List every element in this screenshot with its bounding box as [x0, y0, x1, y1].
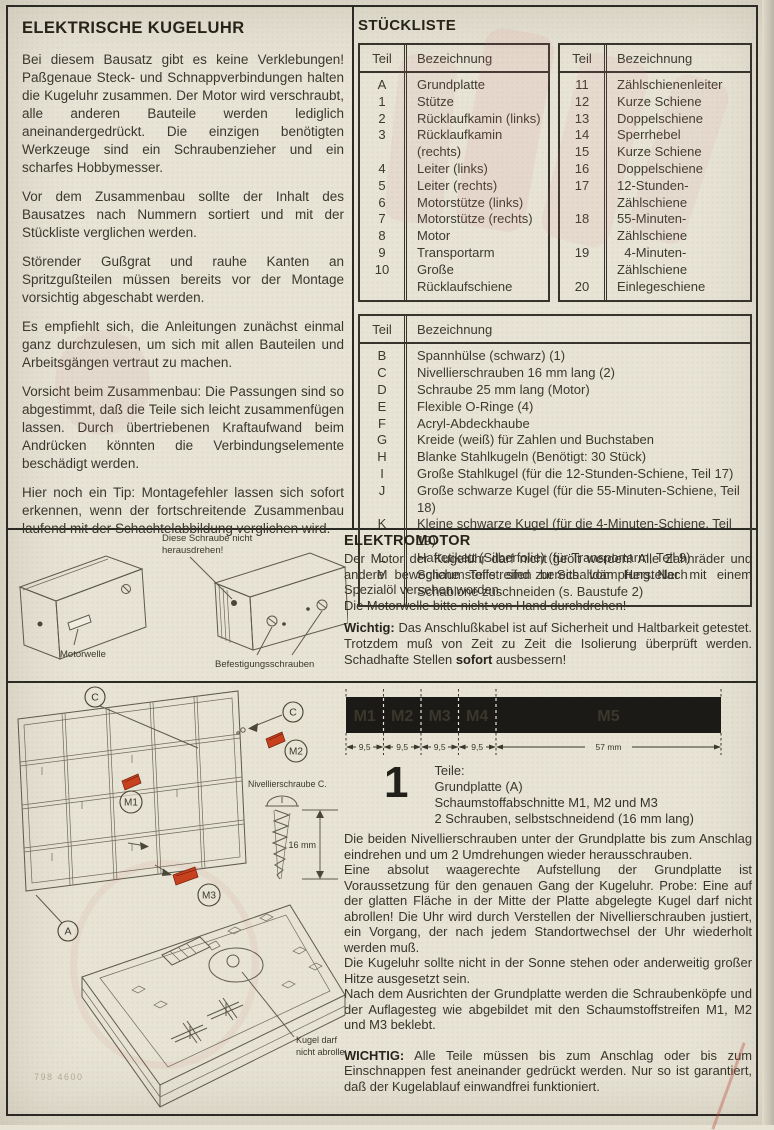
intro-paragraph: Störender Gußgrat und rauhe Kanten an Sp… [22, 253, 344, 307]
part-id: D [360, 382, 404, 399]
table-header: Teil Bezeichnung [360, 45, 548, 73]
callout-m3: M3 [198, 884, 220, 906]
test-ball-icon [227, 955, 239, 967]
table-row: B Spannhülse (schwarz) (1) [360, 348, 750, 365]
table-rows: A Grundplatte 1 Stütze 2 Rücklaufkamin (… [360, 73, 548, 300]
table-row: F Acryl-Abdeckhaube [360, 416, 750, 433]
segment-label-m4: M4 [466, 708, 488, 725]
part-id: 16 [560, 161, 604, 178]
scan-edge [762, 0, 774, 1125]
important-label: Wichtig: [344, 620, 395, 635]
part-name: 4-Minuten-Zählschiene [604, 245, 750, 279]
table-row: D Schraube 25 mm lang (Motor) [360, 382, 750, 399]
header-bezeichnung: Bezeichnung [404, 322, 750, 337]
callout-m1: M1 [120, 791, 142, 813]
table-column-separator [604, 45, 607, 300]
table-row: J Große schwarze Kugel (für die 55-Minut… [360, 483, 750, 517]
part-name: 12-Stunden-Zählschiene [604, 178, 750, 212]
page-frame: ELEKTRISCHE KUGELUHR Bei diesem Bausatz … [6, 5, 758, 1116]
part-name: Große Rücklaufschiene [404, 262, 548, 296]
svg-text:A: A [64, 926, 71, 938]
table-row: H Blanke Stahlkugeln (Benötigt: 30 Stück… [360, 449, 750, 466]
table-column-separator [404, 45, 407, 300]
screw-warning-label-line1: Diese Schraube nicht [162, 533, 253, 544]
part-name: Kurze Schiene [604, 144, 750, 161]
table-rows: 11 Zählschienenleiter 12 Kurze Schiene 1… [560, 73, 750, 300]
part-id: 4 [360, 161, 404, 178]
vertical-divider [352, 7, 354, 528]
part-name: Kurze Schiene [604, 94, 750, 111]
step-parts-list: Teile: Grundplatte (A)Schaumstoffabschni… [434, 763, 693, 827]
print-code: 798 4600 [34, 1072, 84, 1082]
part-name: Große schwarze Kugel (für die 55-Minuten… [404, 483, 750, 517]
header-teil: Teil [360, 51, 404, 66]
part-id: 6 [360, 195, 404, 212]
table-row: 11 Zählschienenleiter [560, 77, 750, 94]
part-name: Motor [404, 228, 548, 245]
part-id: 13 [560, 111, 604, 128]
part-id: A [360, 77, 404, 94]
part-name: Schraube 25 mm lang (Motor) [404, 382, 750, 399]
elektromotor-important: Wichtig: Das Anschlußkabel ist auf Siche… [344, 620, 752, 667]
svg-text:C: C [289, 707, 297, 719]
part-name: Einlegeschiene [604, 279, 750, 296]
motor-left-drawing [20, 556, 146, 659]
screw-warning-label-line2: herausdrehen! [162, 545, 223, 556]
ball-warning-label-line1: Kugel darf [296, 1035, 338, 1045]
part-id: B [360, 348, 404, 365]
part-id: C [360, 365, 404, 382]
table-row: 13 Doppelschiene [560, 111, 750, 128]
header-teil: Teil [360, 322, 404, 337]
base-plate-top-drawing [82, 905, 345, 1107]
table-row: 15 Kurze Schiene [560, 144, 750, 161]
table-row: 14 Sperrhebel [560, 127, 750, 144]
part-id: 1 [360, 94, 404, 111]
header-bezeichnung: Bezeichnung [404, 51, 548, 66]
segment-label-m2: M2 [391, 708, 413, 725]
intro-paragraph: Es empfiehlt sich, die Anleitungen zunäc… [22, 318, 344, 372]
parts-item: 2 Schrauben, selbstschneidend (16 mm lan… [434, 811, 693, 827]
dim-m4: 9,5 [471, 742, 483, 752]
part-name: Doppelschiene [604, 111, 750, 128]
part-name: Flexible O-Ringe (4) [404, 399, 750, 416]
callout-m2: M2 [285, 740, 307, 762]
svg-text:M3: M3 [202, 891, 216, 902]
table-row: A Grundplatte [360, 77, 548, 94]
segment-label-m3: M3 [429, 708, 451, 725]
step-paragraph: Nach dem Ausrichten der Grundplatte werd… [344, 986, 752, 1033]
base-plate-figure: C C M2 M1 M3 A Nivellierschraube C. [12, 685, 346, 1113]
table-row: 17 12-Stunden-Zählschiene [560, 178, 750, 212]
table-row: 5 Leiter (rechts) [360, 178, 548, 195]
dim-m2: 9,5 [396, 742, 408, 752]
foam-piece-m3 [173, 867, 198, 885]
table-row: G Kreide (weiß) für Zahlen und Buchstabe… [360, 432, 750, 449]
svg-text:M1: M1 [124, 798, 138, 809]
mounting-screws-label: Befestigungsschrauben [215, 659, 314, 670]
part-id: H [360, 449, 404, 466]
levelling-cross-supports [171, 998, 243, 1043]
part-id: 18 [560, 211, 604, 245]
parts-list-column: STÜCKLISTE Teil Bezeichnung A Grundplatt… [358, 17, 752, 607]
callout-c-right: C [283, 702, 303, 722]
parts-table-a: Teil Bezeichnung A Grundplatte 1 Stütze … [358, 43, 550, 302]
parts-items: Grundplatte (A)Schaumstoffabschnitte M1,… [434, 779, 693, 827]
motor-figure: Motorwelle Diese Schraube nicht herausdr… [10, 529, 348, 679]
part-name: Große Stahlkugel (für die 12-Stunden-Sch… [404, 466, 750, 483]
base-plate-underside-drawing [18, 691, 282, 923]
step-1-header: 1 Teile: Grundplatte (A)Schaumstoffabsch… [384, 763, 752, 827]
part-id: J [360, 483, 404, 517]
part-id: 14 [560, 127, 604, 144]
intro-paragraph: Bei diesem Bausatz gibt es keine Verkleb… [22, 51, 344, 177]
segment-label-m1: M1 [354, 708, 376, 725]
part-name: Motorstütze (links) [404, 195, 548, 212]
part-id: F [360, 416, 404, 433]
part-name: Stütze [404, 94, 548, 111]
page-title: ELEKTRISCHE KUGELUHR [22, 19, 344, 38]
intro-paragraphs: Bei diesem Bausatz gibt es keine Verkleb… [22, 51, 344, 538]
step-paragraphs: Die beiden Nivellierschrauben unter der … [344, 831, 752, 1033]
horizontal-divider-2 [8, 681, 756, 683]
step-important: WICHTIG: Alle Teile müssen bis zum Ansch… [344, 1048, 752, 1095]
table-row: 3 Rücklaufkamin (rechts) [360, 127, 548, 161]
callout-a: A [58, 921, 78, 941]
table-header: Teil Bezeichnung [360, 316, 750, 344]
part-id: G [360, 432, 404, 449]
table-row: 4 Leiter (links) [360, 161, 548, 178]
part-name: Leiter (links) [404, 161, 548, 178]
elektromotor-section: ELEKTROMOTOR Der Motor der Kugeluhr darf… [344, 533, 752, 667]
part-id: 2 [360, 111, 404, 128]
table-row: 9 Transportarm [360, 245, 548, 262]
part-id: 9 [360, 245, 404, 262]
table-row: 2 Rücklaufkamin (links) [360, 111, 548, 128]
table-row: 10 Große Rücklaufschiene [360, 262, 548, 296]
svg-text:C: C [91, 692, 99, 704]
part-name: Grundplatte [404, 77, 548, 94]
part-name: Kreide (weiß) für Zahlen und Buchstaben [404, 432, 750, 449]
dim-m3: 9,5 [434, 742, 446, 752]
part-name: Doppelschiene [604, 161, 750, 178]
part-id: 11 [560, 77, 604, 94]
ball-warning-label-line2: nicht abrollen! [296, 1047, 346, 1057]
step-paragraph: Die beiden Nivellierschrauben unter der … [344, 831, 752, 862]
part-id: I [360, 466, 404, 483]
part-name: Spannhülse (schwarz) (1) [404, 348, 750, 365]
table-row: 20 Einlegeschiene [560, 279, 750, 296]
intro-column: ELEKTRISCHE KUGELUHR Bei diesem Bausatz … [22, 19, 344, 549]
table-row: I Große Stahlkugel (für die 12-Stunden-S… [360, 466, 750, 483]
table-row: 12 Kurze Schiene [560, 94, 750, 111]
foam-strip-diagram: M1 M2 M3 M4 M5 9,5 9,5 9,5 9,5 57 mm [344, 685, 742, 759]
important-text: Alle Teile müssen bis zum Anschlag oder … [344, 1048, 752, 1094]
part-id: 15 [560, 144, 604, 161]
header-teil: Teil [560, 51, 604, 66]
part-name: Leiter (rechts) [404, 178, 548, 195]
svg-text:M2: M2 [289, 747, 303, 758]
table-row: 6 Motorstütze (links) [360, 195, 548, 212]
part-id: 7 [360, 211, 404, 228]
table-row: 8 Motor [360, 228, 548, 245]
table-row: 16 Doppelschiene [560, 161, 750, 178]
table-header: Teil Bezeichnung [560, 45, 750, 73]
parts-tables-row: Teil Bezeichnung A Grundplatte 1 Stütze … [358, 43, 752, 302]
part-id: 12 [560, 94, 604, 111]
parts-item: Schaumstoffabschnitte M1, M2 und M3 [434, 795, 693, 811]
table-row: 18 55-Minuten-Zählschiene [560, 211, 750, 245]
part-id: 10 [360, 262, 404, 296]
test-area-circle [209, 948, 263, 982]
part-id: E [360, 399, 404, 416]
part-id: 17 [560, 178, 604, 212]
part-name: Rücklaufkamin (links) [404, 111, 548, 128]
important-bold-word: sofort [456, 652, 493, 667]
motor-right-drawing [190, 553, 348, 655]
table-row: 1 Stütze [360, 94, 548, 111]
part-name: Blanke Stahlkugeln (Benötigt: 30 Stück) [404, 449, 750, 466]
parts-table-b: Teil Bezeichnung 11 Zählschienenleiter 1… [558, 43, 752, 302]
step-number: 1 [384, 763, 408, 827]
intro-paragraph: Vorsicht beim Zusammenbau: Die Passungen… [22, 383, 344, 473]
levelling-screw-drawing [265, 796, 338, 879]
dim-m1: 9,5 [359, 742, 371, 752]
part-name: Sperrhebel [604, 127, 750, 144]
table-row: 19 4-Minuten-Zählschiene [560, 245, 750, 279]
parts-item: Grundplatte (A) [434, 779, 693, 795]
foam-piece-m1 [122, 774, 141, 790]
header-bezeichnung: Bezeichnung [604, 51, 750, 66]
part-name: Motorstütze (rechts) [404, 211, 548, 228]
part-name: Acryl-Abdeckhaube [404, 416, 750, 433]
step-paragraph: Eine absolut waagerechte Aufstellung der… [344, 862, 752, 955]
important-label: WICHTIG: [344, 1048, 404, 1063]
dim-m5: 57 mm [596, 742, 622, 752]
part-name: 55-Minuten-Zählschiene [604, 211, 750, 245]
segment-label-m5: M5 [597, 708, 619, 725]
intro-paragraph: Vor dem Zusammenbau sollte der Inhalt de… [22, 188, 344, 242]
part-id: 3 [360, 127, 404, 161]
part-name: Transportarm [404, 245, 548, 262]
warning-screw-icon [231, 600, 237, 606]
part-id: 19 [560, 245, 604, 279]
parts-list-title: STÜCKLISTE [358, 17, 752, 34]
part-id: 8 [360, 228, 404, 245]
parts-title: Teile: [434, 763, 693, 779]
elektromotor-paragraph-1: Der Motor der Kugeluhr darf nicht geölt … [344, 551, 752, 598]
part-name: Nivellierschrauben 16 mm lang (2) [404, 365, 750, 382]
step-1-text: Die beiden Nivellierschrauben unter der … [344, 831, 752, 1094]
screw-length-dimension: 16 mm [288, 840, 316, 850]
important-text-end: ausbessern! [492, 652, 566, 667]
part-id: 20 [560, 279, 604, 296]
table-row: 7 Motorstütze (rechts) [360, 211, 548, 228]
levelling-screw-label: Nivellierschraube C. [248, 779, 327, 789]
part-id: 5 [360, 178, 404, 195]
part-name: Rücklaufkamin (rechts) [404, 127, 548, 161]
foam-piece-m2 [266, 732, 285, 748]
part-name: Zählschienenleiter [604, 77, 750, 94]
elektromotor-title: ELEKTROMOTOR [344, 533, 752, 549]
table-row: C Nivellierschrauben 16 mm lang (2) [360, 365, 750, 382]
motor-shaft [68, 615, 91, 630]
motor-shaft-label: Motorwelle [60, 649, 106, 660]
callout-c-top: C [85, 687, 105, 707]
table-row: E Flexible O-Ringe (4) [360, 399, 750, 416]
step-paragraph: Die Kugeluhr sollte nicht in der Sonne s… [344, 955, 752, 986]
elektromotor-paragraph-2: Die Motorwelle bitte nicht von Hand durc… [344, 598, 752, 614]
